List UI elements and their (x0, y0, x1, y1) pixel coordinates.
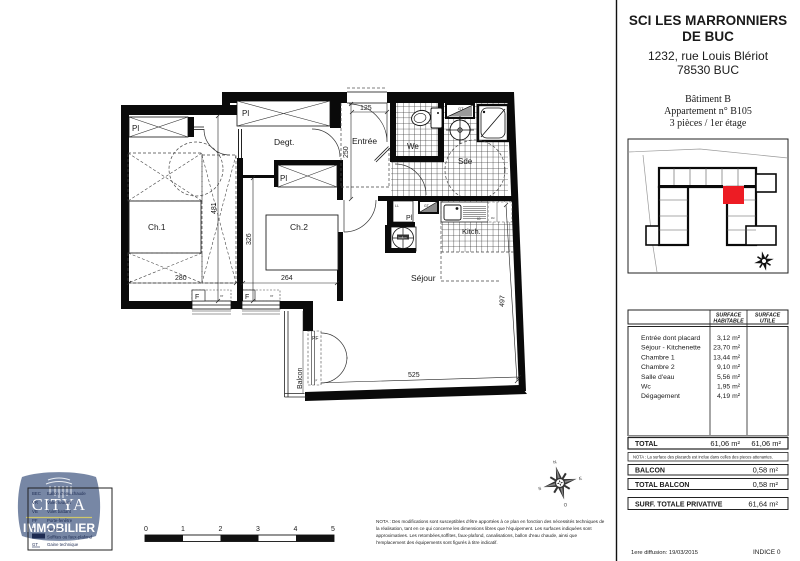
svg-text:N: N (553, 459, 557, 465)
svg-text:l'emplacement des équipements: l'emplacement des équipements sont figur… (376, 540, 498, 545)
svg-text:SURF. TOTALE PRIVATIVE: SURF. TOTALE PRIVATIVE (635, 502, 723, 509)
svg-text:3,12 m²: 3,12 m² (717, 335, 741, 342)
svg-text:Chambre 2: Chambre 2 (641, 364, 675, 371)
svg-text:Pl: Pl (242, 109, 249, 118)
svg-text:NOTA : Des modifications sont: NOTA : Des modifications sont susceptibl… (376, 519, 605, 524)
svg-text:280: 280 (175, 275, 187, 282)
svg-text:61,64 m²: 61,64 m² (748, 500, 778, 509)
svg-text:We: We (407, 142, 419, 151)
svg-text:Pl: Pl (280, 174, 287, 183)
svg-text:61,06 m²: 61,06 m² (751, 439, 781, 448)
svg-text:SCI LES MARRONNIERS: SCI LES MARRONNIERS (629, 13, 787, 28)
svg-text:la réalisation, tant en ce qui: la réalisation, tant en ce qui concerne … (376, 526, 592, 531)
svg-text:ballon: ballon (399, 236, 407, 240)
svg-text:0: 0 (144, 526, 148, 533)
svg-text:Soffites ou faux-plafond: Soffites ou faux-plafond (47, 535, 93, 540)
svg-text:E: E (578, 476, 582, 482)
svg-text:Wc: Wc (641, 384, 651, 391)
svg-text:1,95 m²: 1,95 m² (717, 384, 741, 391)
svg-text:Volet roulant: Volet roulant (47, 500, 72, 505)
svg-text:F: F (245, 294, 249, 301)
svg-text:GT: GT (424, 204, 430, 208)
svg-text:HABITABLE: HABITABLE (713, 319, 744, 325)
svg-text:Volet battant: Volet battant (47, 509, 72, 514)
svg-text:Bâtiment B: Bâtiment B (685, 94, 731, 105)
svg-text:TOTAL BALCON: TOTAL BALCON (635, 482, 689, 489)
svg-text:9,10 m²: 9,10 m² (717, 364, 741, 371)
svg-text:GT: GT (458, 106, 464, 111)
svg-text:Ballon d'eau chaude: Ballon d'eau chaude (47, 491, 86, 496)
svg-text:F: F (32, 527, 35, 532)
svg-text:5,56 m²: 5,56 m² (717, 374, 741, 381)
svg-text:2: 2 (219, 526, 223, 533)
svg-text:vr: vr (220, 293, 224, 298)
svg-text:Sde: Sde (458, 157, 473, 166)
svg-text:Degt.: Degt. (274, 137, 294, 147)
svg-text:O: O (563, 502, 568, 508)
svg-text:INDICE 0: INDICE 0 (753, 549, 781, 556)
svg-text:Salle d'eau: Salle d'eau (641, 374, 675, 381)
svg-text:23,70 m²: 23,70 m² (713, 345, 741, 352)
svg-text:Entrée: Entrée (352, 136, 377, 146)
svg-text:264: 264 (281, 275, 293, 282)
svg-text:Pl: Pl (132, 124, 139, 133)
svg-text:PF: PF (312, 336, 318, 342)
svg-text:DE BUC: DE BUC (682, 29, 734, 44)
svg-text:Ch.2: Ch.2 (290, 222, 308, 232)
svg-text:vr: vr (270, 293, 274, 298)
svg-text:Entrée dont placard: Entrée dont placard (641, 335, 701, 342)
svg-text:Séjour: Séjour (411, 273, 436, 283)
svg-text:Fenêtre: Fenêtre (47, 527, 62, 532)
svg-text:125: 125 (360, 105, 372, 112)
svg-text:GT: GT (32, 542, 38, 547)
svg-text:4: 4 (294, 526, 298, 533)
svg-text:0,58 m²: 0,58 m² (753, 480, 779, 489)
svg-text:UTILE: UTILE (760, 319, 776, 325)
svg-text:525: 525 (408, 372, 420, 379)
svg-text:S: S (538, 486, 542, 492)
svg-text:13,44 m²: 13,44 m² (713, 354, 741, 361)
svg-text:Balcon: Balcon (297, 367, 304, 389)
svg-text:1: 1 (181, 526, 185, 533)
svg-text:481: 481 (211, 202, 218, 214)
svg-text:LL: LL (395, 204, 399, 208)
svg-text:1232, rue Louis Blériot: 1232, rue Louis Blériot (648, 49, 769, 63)
svg-text:60: 60 (477, 217, 481, 221)
svg-text:TOTAL: TOTAL (635, 441, 658, 448)
svg-text:PF: PF (32, 518, 38, 523)
svg-text:VR: VR (32, 500, 38, 505)
svg-text:Chambre 1: Chambre 1 (641, 354, 675, 361)
svg-text:3 pièces / 1er étage: 3 pièces / 1er étage (670, 118, 747, 129)
svg-text:Séjour - Kitchenette: Séjour - Kitchenette (641, 345, 701, 352)
svg-text:BALCON: BALCON (635, 468, 665, 475)
svg-text:Gaine technique: Gaine technique (47, 542, 79, 547)
svg-text:Kitch.: Kitch. (462, 227, 481, 236)
svg-text:pf: pf (315, 378, 318, 382)
svg-text:78530 BUC: 78530 BUC (677, 63, 739, 77)
svg-text:326: 326 (246, 233, 253, 245)
svg-text:4,19 m²: 4,19 m² (717, 393, 741, 400)
svg-text:Porte-fenêtre: Porte-fenêtre (47, 518, 73, 523)
svg-text:NOTA : La surface des placards: NOTA : La surface des placards est inclu… (633, 455, 773, 460)
svg-text:0,58 m²: 0,58 m² (753, 466, 779, 475)
svg-text:approximatives. Les retombées,: approximatives. Les retombées,soffites, … (376, 533, 577, 538)
svg-text:1ere diffusion: 19/03/2015: 1ere diffusion: 19/03/2015 (631, 550, 698, 556)
svg-text:BEC: BEC (32, 491, 41, 496)
svg-text:F: F (195, 294, 199, 301)
svg-text:5: 5 (331, 526, 335, 533)
svg-text:Ch.1: Ch.1 (148, 222, 166, 232)
svg-text:3: 3 (256, 526, 260, 533)
svg-text:61,06 m²: 61,06 m² (710, 439, 740, 448)
svg-text:Appartement n° B105: Appartement n° B105 (664, 106, 752, 117)
svg-text:Pl: Pl (406, 215, 413, 222)
svg-text:497: 497 (499, 295, 507, 307)
svg-text:cu: cu (491, 216, 495, 220)
svg-text:250: 250 (343, 146, 350, 158)
svg-text:VB: VB (32, 509, 38, 514)
svg-text:Dégagement: Dégagement (641, 393, 680, 400)
